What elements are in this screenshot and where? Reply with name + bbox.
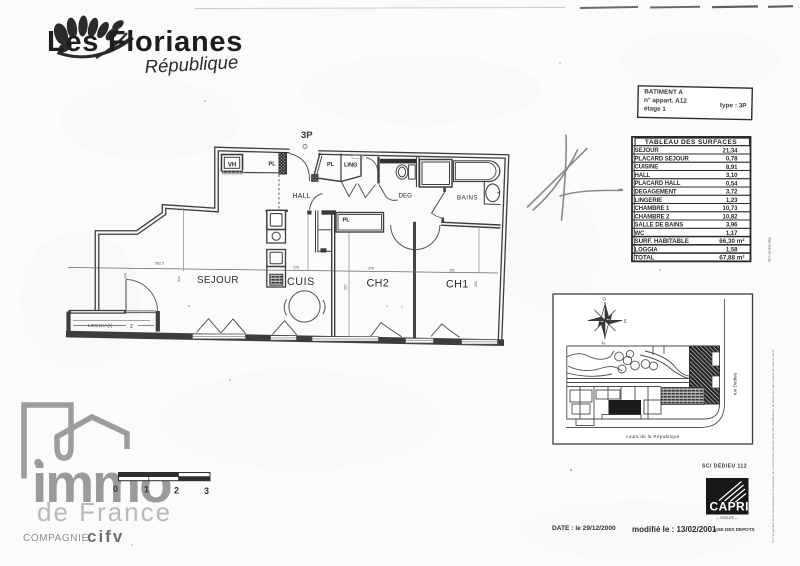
svg-text:2: 2 xyxy=(130,324,133,330)
svg-text:1: 1 xyxy=(144,485,149,495)
svg-text:3,10: 3,10 xyxy=(726,173,738,179)
svg-text:344: 344 xyxy=(124,273,128,279)
svg-text:CHAMBRE 2: CHAMBRE 2 xyxy=(635,214,671,220)
svg-text:cifv: cifv xyxy=(87,527,124,546)
svg-text:CAPRI: CAPRI xyxy=(710,500,749,514)
svg-text:301: 301 xyxy=(474,281,478,287)
svg-text:Tout en gardant leurs caracter: Tout en gardant leurs caracteristiques e… xyxy=(771,350,775,543)
svg-text:HALL: HALL xyxy=(635,173,651,179)
svg-text:SEJOUR: SEJOUR xyxy=(635,148,660,154)
svg-text:1,23: 1,23 xyxy=(726,198,738,204)
svg-text:DEGAGEMENT: DEGAGEMENT xyxy=(635,190,677,196)
svg-text:PL: PL xyxy=(327,162,335,168)
svg-text:rue Dedieu: rue Dedieu xyxy=(733,372,738,395)
svg-text:0: 0 xyxy=(113,484,118,494)
svg-text:8,91: 8,91 xyxy=(726,165,738,171)
svg-text:CUIS: CUIS xyxy=(287,276,315,288)
svg-text:CH2: CH2 xyxy=(367,278,390,290)
svg-text:3,72: 3,72 xyxy=(726,190,738,196)
svg-text:CHAMBRE 1: CHAMBRE 1 xyxy=(635,206,671,212)
svg-text:PL: PL xyxy=(269,162,277,168)
svg-text:DEG: DEG xyxy=(399,193,413,200)
svg-text:AISE DES DEPOTS: AISE DES DEPOTS xyxy=(713,527,755,532)
svg-text:SCI DEDIEU 112: SCI DEDIEU 112 xyxy=(702,464,747,470)
svg-text:étage 1: étage 1 xyxy=(644,105,667,112)
svg-text:225: 225 xyxy=(293,266,299,270)
svg-text:cours de la République: cours de la République xyxy=(626,434,680,439)
svg-text:562.5: 562.5 xyxy=(155,262,164,266)
svg-text:CH1: CH1 xyxy=(446,279,469,291)
svg-text:3P: 3P xyxy=(301,130,313,141)
svg-text:3: 3 xyxy=(204,486,209,496)
svg-text:SEJOUR: SEJOUR xyxy=(197,275,239,286)
svg-text:TABLEAU DES SURFACES: TABLEAU DES SURFACES xyxy=(645,139,737,146)
svg-text:10,73: 10,73 xyxy=(722,206,738,212)
svg-text:PLACARD SEJOUR: PLACARD SEJOUR xyxy=(635,156,690,162)
svg-text:21,34: 21,34 xyxy=(722,148,738,154)
svg-text:E: E xyxy=(624,319,627,324)
svg-text:COMPAGNIE: COMPAGNIE xyxy=(23,533,89,544)
svg-text:de France: de France xyxy=(37,497,172,527)
svg-text:3,96: 3,96 xyxy=(726,223,738,229)
svg-text:PLACARD HALL: PLACARD HALL xyxy=(635,181,681,187)
svg-text:344: 344 xyxy=(177,276,181,282)
svg-text:O: O xyxy=(603,297,607,302)
svg-text:SURF. HABITABLE: SURF. HABITABLE xyxy=(635,238,689,245)
svg-text:LING: LING xyxy=(344,163,357,169)
svg-text:0,54: 0,54 xyxy=(726,181,738,187)
svg-text:367: 367 xyxy=(344,284,348,290)
svg-text:67,88 m²: 67,88 m² xyxy=(719,255,744,262)
svg-text:2: 2 xyxy=(174,486,179,496)
svg-text:PL: PL xyxy=(343,218,351,224)
svg-text:TOTAL: TOTAL xyxy=(635,255,655,262)
svg-text:N: N xyxy=(602,341,605,346)
svg-text:0,78: 0,78 xyxy=(726,157,738,163)
svg-text:10,82: 10,82 xyxy=(722,214,738,220)
svg-text:LINGERIE: LINGERIE xyxy=(635,198,663,204)
svg-text:SALLE DE BAINS: SALLE DE BAINS xyxy=(635,223,684,229)
svg-text:CUISINE: CUISINE xyxy=(635,165,659,171)
svg-text:n° appart. A12: n° appart. A12 xyxy=(644,96,687,105)
svg-text:type : 3P: type : 3P xyxy=(720,102,748,110)
svg-text:BAINS: BAINS xyxy=(457,195,478,202)
svg-text:modifié le : 13/02/2001: modifié le : 13/02/2001 xyxy=(632,525,717,534)
svg-text:281: 281 xyxy=(449,269,455,273)
svg-text:DATE : le 29/12/2000: DATE : le 29/12/2000 xyxy=(552,525,616,532)
svg-text:BATIMENT A: BATIMENT A xyxy=(644,88,683,96)
svg-text:VH: VH xyxy=(228,163,236,169)
svg-text:— GROUPE —: — GROUPE — xyxy=(716,516,739,520)
svg-text:66,30 m²: 66,30 m² xyxy=(719,238,744,245)
svg-text:SCI rue des dep: SCI rue des dep xyxy=(768,237,772,262)
svg-text:HALL: HALL xyxy=(293,193,311,200)
svg-text:376: 376 xyxy=(368,267,374,271)
